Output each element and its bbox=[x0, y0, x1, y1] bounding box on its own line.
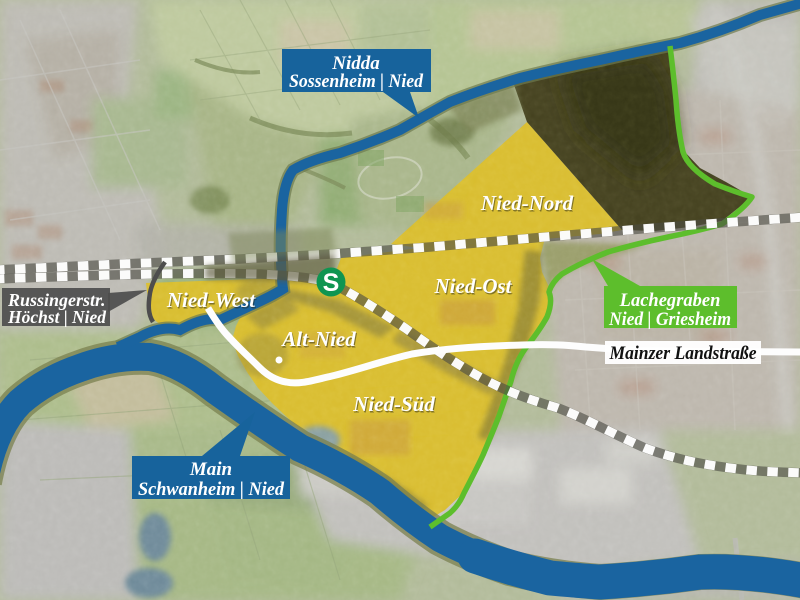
svg-text:Alt-Nied: Alt-Nied bbox=[280, 327, 356, 351]
svg-text:Höchst | Nied: Höchst | Nied bbox=[7, 307, 107, 327]
svg-text:Mainzer Landstraße: Mainzer Landstraße bbox=[609, 343, 757, 364]
svg-text:Main: Main bbox=[189, 459, 232, 480]
svg-text:Nied-Süd: Nied-Süd bbox=[352, 392, 435, 416]
svg-text:Sossenheim | Nied: Sossenheim | Nied bbox=[289, 71, 423, 92]
svg-text:Nied | Griesheim: Nied | Griesheim bbox=[608, 310, 731, 330]
svg-text:Schwanheim | Nied: Schwanheim | Nied bbox=[138, 479, 284, 500]
svg-text:Nied-Nord: Nied-Nord bbox=[480, 191, 574, 215]
svg-text:Nied-Ost: Nied-Ost bbox=[434, 274, 513, 298]
svg-text:Nied-West: Nied-West bbox=[166, 288, 256, 312]
svg-text:Lachegraben: Lachegraben bbox=[619, 291, 721, 311]
svg-text:S: S bbox=[323, 269, 340, 297]
